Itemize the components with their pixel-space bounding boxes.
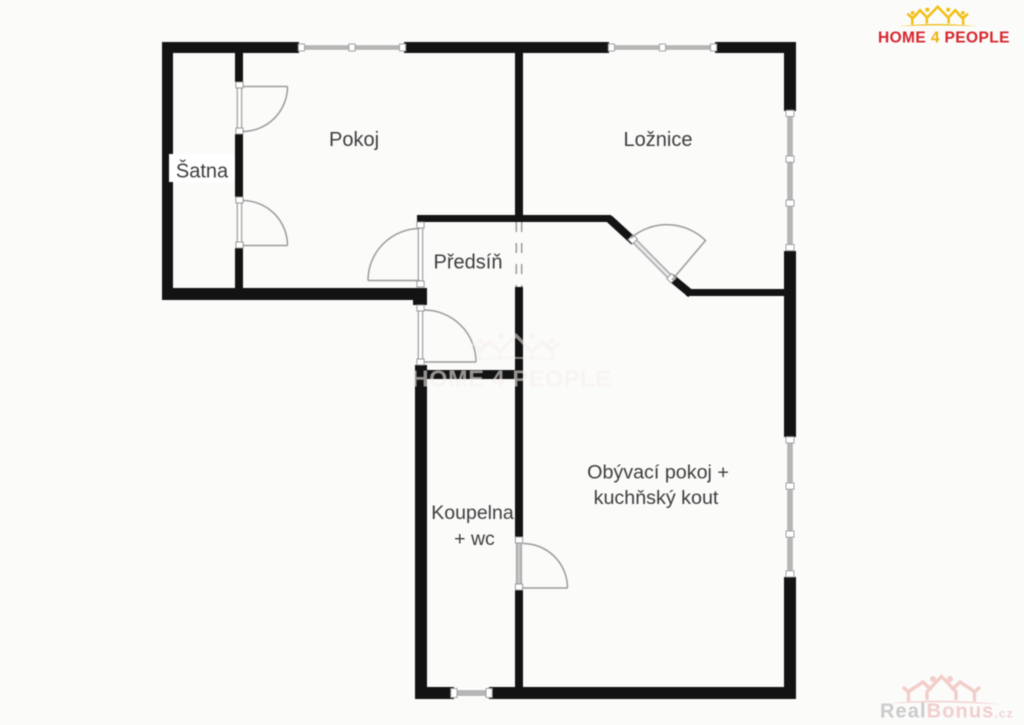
svg-text:Pokoj: Pokoj — [329, 129, 379, 151]
svg-text:Koupelna: Koupelna — [431, 502, 514, 524]
svg-text:Ložnice: Ložnice — [624, 129, 693, 151]
svg-text:+ wc: + wc — [454, 528, 495, 550]
svg-text:HOME 4 PEOPLE: HOME 4 PEOPLE — [412, 366, 612, 392]
svg-text:RealBonus.cz: RealBonus.cz — [880, 701, 1014, 723]
svg-text:Šatna: Šatna — [176, 160, 229, 183]
svg-text:HOME 4 PEOPLE: HOME 4 PEOPLE — [878, 30, 1010, 47]
svg-text:kuchňský kout: kuchňský kout — [594, 487, 719, 509]
svg-text:Obývací pokoj +: Obývací pokoj + — [587, 462, 729, 484]
svg-text:Předsíň: Předsíň — [434, 252, 503, 274]
